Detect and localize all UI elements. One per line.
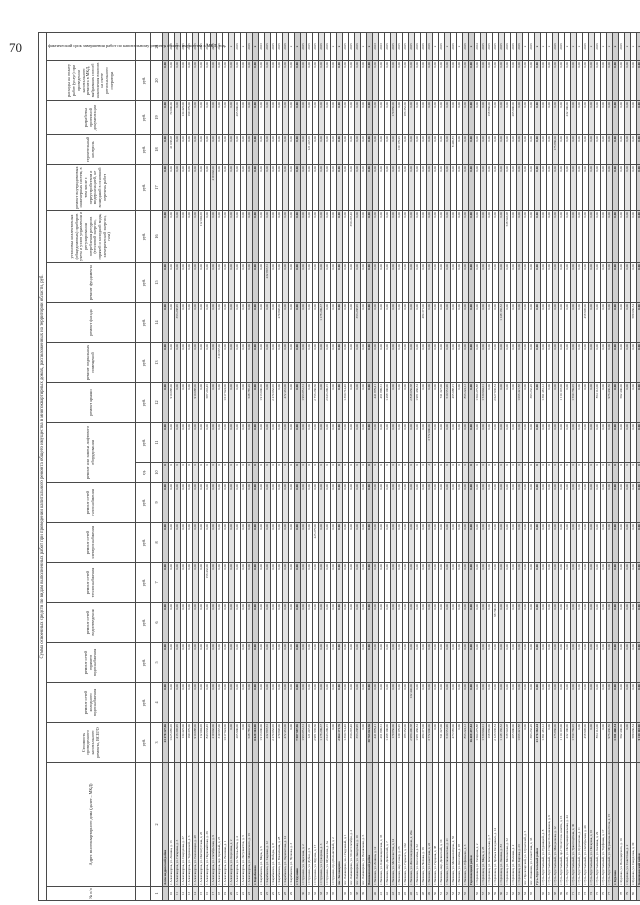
unit-cell [136, 887, 151, 901]
column-number-cell: 16 [151, 211, 163, 263]
table-header: Сумма освоенных средств по видам выполне… [39, 32, 163, 900]
unit-cell: руб. [136, 643, 151, 683]
page-number: 70 [9, 40, 22, 56]
cell-value: 0 [637, 463, 640, 483]
column-title: № п/п [47, 887, 136, 901]
table-body: Александровский район23 270 127,060,000,… [163, 32, 640, 900]
column-number-cell: 18 [151, 135, 163, 165]
unit-cell: ед. [136, 463, 151, 483]
cell-value: 0,00 [637, 211, 640, 263]
column-title: ремонт сетей водоотведения [47, 603, 136, 643]
column-title: фактический срок завершения работ по кап… [47, 32, 136, 60]
column-number-cell: 20 [151, 61, 163, 101]
column-title: ремонт внутридомовых инженерных систем, … [47, 165, 136, 211]
units-row: руб.руб.руб.руб.руб.руб.руб.ед.руб.руб.р… [136, 32, 151, 900]
column-title: Адрес многоквартирного дома (далее – МКД… [47, 763, 136, 887]
column-title: ремонт или замена лифтового оборудования [47, 423, 136, 483]
column-title: ремонт фасада [47, 303, 136, 343]
unit-cell [136, 763, 151, 887]
column-title: ремонт сетей горячего водоснабжения [47, 643, 136, 683]
column-title: установка коллективных (общедомовых) при… [47, 211, 136, 263]
unit-cell: руб. [136, 483, 151, 523]
column-title: ремонт фундамента [47, 263, 136, 303]
column-title: ремонт сетей теплоснабжения [47, 563, 136, 603]
cell-value: 0,00 [637, 383, 640, 423]
column-title: ремонт подвальных помещений [47, 343, 136, 383]
section-row: Камешковский район9 110 118,000,000,000,… [637, 32, 640, 900]
unit-cell: руб. [136, 101, 151, 135]
column-title: ремонт крыши [47, 383, 136, 423]
unit-cell: руб. [136, 263, 151, 303]
rotated-table-container: Сумма освоенных средств по видам выполне… [38, 33, 638, 901]
column-number-cell: 10 [151, 463, 163, 483]
cell-value: 0,00 [637, 523, 640, 563]
unit-cell: руб. [136, 603, 151, 643]
capital-repair-report-table: Сумма освоенных средств по видам выполне… [38, 32, 640, 901]
column-number-cell: 8 [151, 523, 163, 563]
column-number-cell: 15 [151, 263, 163, 303]
cell-value: 0,00 [637, 263, 640, 303]
column-title: разработка проектной документации [47, 101, 136, 135]
cell-value: 0,00 [637, 483, 640, 523]
cell-value: 0,00 [637, 423, 640, 463]
column-number-cell: 11 [151, 423, 163, 463]
unit-cell: руб. [136, 61, 151, 101]
unit-cell: руб. [136, 135, 151, 165]
column-title: ремонт сетей газоснабжения [47, 483, 136, 523]
cell-value: 0,00 [637, 563, 640, 603]
column-number-cell: 17 [151, 165, 163, 211]
column-title: Стоимость проведенного капитального ремо… [47, 723, 136, 763]
unit-cell: руб. [136, 165, 151, 211]
unit-cell: руб. [136, 383, 151, 423]
cell-row-number [637, 887, 640, 901]
column-number-cell: 1 [151, 887, 163, 901]
cell-value: 0,00 [637, 101, 640, 135]
column-title: ремонт сетей холодного водоснабжения [47, 683, 136, 723]
cell-value: 0,00 [637, 165, 640, 211]
cell-value: 0,00 [637, 643, 640, 683]
column-title-vertical-text: фактический срок завершения работ по кап… [48, 44, 134, 49]
cell-year: х [637, 32, 640, 60]
unit-cell: руб. [136, 211, 151, 263]
cell-value: 0,00 [637, 61, 640, 101]
column-number-cell: 19 [151, 101, 163, 135]
cell-value: 0,00 [637, 303, 640, 343]
unit-cell: руб. [136, 303, 151, 343]
column-number-cell: 14 [151, 303, 163, 343]
column-number-cell: 13 [151, 343, 163, 383]
column-title: строительный контроль [47, 135, 136, 165]
column-number-cell: 12 [151, 383, 163, 423]
caption-row: Сумма освоенных средств по видам выполне… [39, 32, 47, 900]
column-titles-row: № п/пАдрес многоквартирного дома (далее … [47, 32, 136, 900]
unit-cell: руб. [136, 523, 151, 563]
column-number-cell: 4 [151, 683, 163, 723]
column-number-cell: 2 [151, 763, 163, 887]
document-page: 70 Сумма освоенных средств по видам выпо… [0, 0, 640, 905]
column-number-cell: 3 [151, 723, 163, 763]
cell-value: 0,00 [637, 135, 640, 165]
cell-value: 0,00 [637, 603, 640, 643]
column-number-cell: 6 [151, 603, 163, 643]
cell-value: 9 110 118,00 [637, 723, 640, 763]
column-number-cell: 9 [151, 483, 163, 523]
cell-value: 0,00 [637, 683, 640, 723]
table-caption: Сумма освоенных средств по видам выполне… [39, 32, 47, 900]
unit-cell: руб. [136, 423, 151, 463]
unit-cell: руб. [136, 563, 151, 603]
column-title: ремонт сетей электроснабжения [47, 523, 136, 563]
column-number-cell: 7 [151, 563, 163, 603]
column-number-cell: 5 [151, 643, 163, 683]
unit-cell: руб. [136, 343, 151, 383]
cell-section-label: Камешковский район [637, 763, 640, 887]
column-title: расходы на оплату работ (услуг) при пров… [47, 61, 136, 101]
unit-cell: руб. [136, 683, 151, 723]
cell-value: 0,00 [637, 343, 640, 383]
unit-cell: руб. [136, 723, 151, 763]
column-numbers-row: 123456789101112131415161718192021 [151, 32, 163, 900]
